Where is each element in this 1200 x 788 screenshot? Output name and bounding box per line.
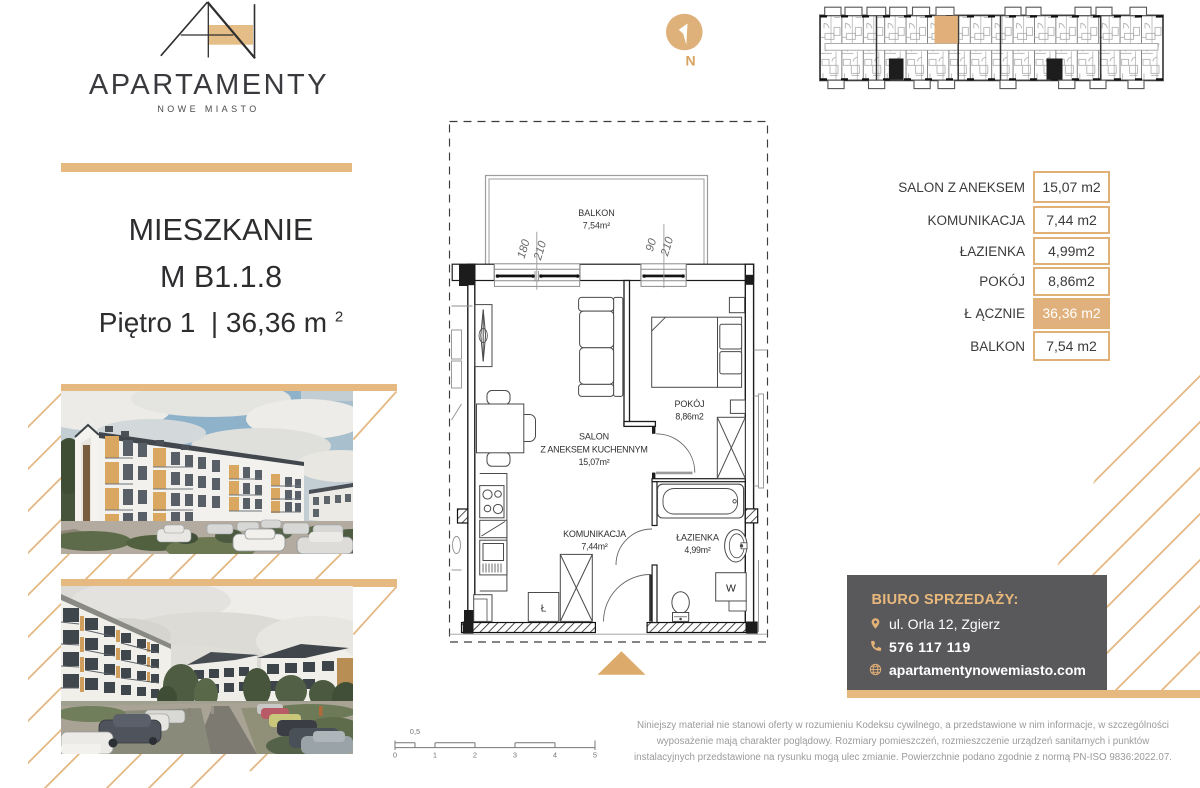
svg-text:210: 210: [532, 239, 550, 262]
svg-text:8,86m2: 8,86m2: [675, 412, 703, 422]
svg-text:Ł: Ł: [541, 604, 547, 615]
svg-text:90: 90: [644, 237, 659, 253]
svg-text:4,99m²: 4,99m²: [684, 545, 710, 555]
svg-text:KOMUNIKACJA: KOMUNIKACJA: [563, 529, 626, 539]
svg-text:Z ANEKSEM KUCHENNYM: Z ANEKSEM KUCHENNYM: [540, 445, 647, 455]
svg-text:0,5: 0,5: [410, 727, 420, 736]
svg-text:5: 5: [593, 751, 597, 760]
svg-text:0: 0: [393, 751, 397, 760]
svg-text:4: 4: [553, 751, 557, 760]
svg-text:BALKON: BALKON: [578, 208, 615, 218]
svg-text:7,44m²: 7,44m²: [581, 542, 607, 552]
svg-text:15,07m²: 15,07m²: [579, 457, 610, 467]
svg-text:ŁAZIENKA: ŁAZIENKA: [676, 533, 719, 543]
svg-text:POKÓJ: POKÓJ: [674, 399, 704, 409]
svg-text:W: W: [726, 583, 736, 595]
svg-text:3: 3: [513, 751, 517, 760]
svg-text:1: 1: [433, 751, 437, 760]
svg-text:180: 180: [516, 238, 533, 260]
svg-text:7,54m²: 7,54m²: [583, 221, 610, 231]
svg-text:SALON: SALON: [579, 432, 609, 442]
svg-text:210: 210: [659, 235, 677, 258]
svg-text:2: 2: [473, 751, 477, 760]
svg-text:N: N: [686, 53, 696, 69]
